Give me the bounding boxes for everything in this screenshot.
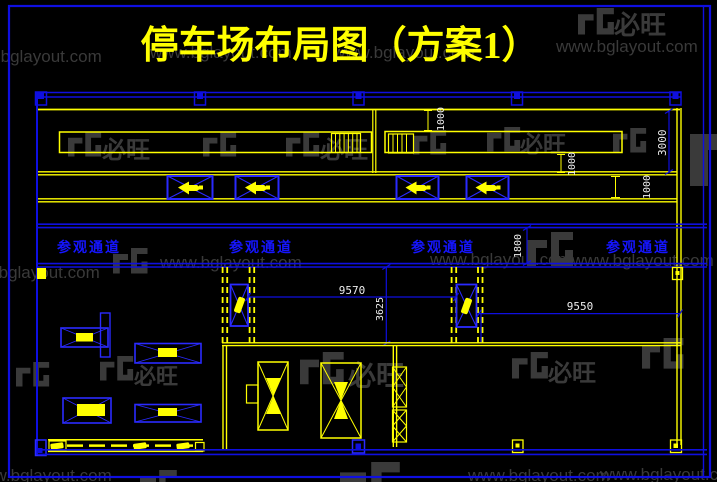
- stair-hatch: [389, 134, 414, 153]
- svg-text:1800: 1800: [513, 234, 524, 258]
- building-b: [385, 132, 622, 153]
- car-symbol: [460, 297, 472, 314]
- watermark-brand: 必旺: [348, 360, 404, 391]
- car-symbol: [50, 442, 64, 450]
- horizontal-stall: [135, 344, 201, 364]
- svg-text:1000: 1000: [642, 175, 653, 199]
- watermark-logo-icon: [487, 127, 520, 151]
- vertical-stall: [223, 267, 255, 343]
- dimension-1000-stair: 1000: [424, 107, 447, 131]
- horizontal-stall: [63, 398, 111, 423]
- watermark-url: www.bglayout.com: [467, 466, 610, 482]
- corridor-junction-left: [37, 268, 46, 279]
- direction-arrow-box: [236, 176, 279, 199]
- cad-canvas: www.bglayout.com www.bglayout.com www.bg…: [0, 0, 717, 482]
- watermark-logo-icon: [300, 352, 344, 384]
- corridor-label: 参观通道: [57, 239, 121, 255]
- road-markings: [38, 172, 677, 202]
- ramp-block: [247, 362, 289, 430]
- watermark-logo-icon: [512, 352, 548, 379]
- watermark-url: www.bglayout.com: [599, 465, 717, 482]
- watermark-url: www.bglayout.com: [0, 263, 100, 282]
- watermark-logo-icon: [16, 362, 49, 386]
- svg-text:1000: 1000: [567, 152, 578, 176]
- dimension-1000-road: 1000: [611, 175, 653, 199]
- dimension-9570: 9570: [246, 284, 459, 301]
- watermark-brand: 必旺: [614, 10, 666, 40]
- car-symbol: [133, 442, 147, 450]
- watermark-url: www.bglayout.com: [555, 37, 698, 56]
- watermark-logo-icon: [578, 8, 614, 35]
- car-symbol: [176, 442, 190, 450]
- junction-box: [671, 440, 682, 453]
- watermark-url: www.bglayout.com: [0, 466, 112, 482]
- dimension-3000: 3000: [656, 109, 673, 175]
- watermark-logo-icon: [100, 356, 133, 380]
- corridor-label: 参观通道: [229, 239, 293, 255]
- svg-text:9550: 9550: [567, 300, 594, 313]
- cad-drawing-page: www.bglayout.com www.bglayout.com www.bg…: [0, 0, 717, 482]
- corridor-label: 参观通道: [411, 239, 475, 255]
- dimension-9550: 9550: [477, 300, 683, 343]
- horizontal-stall: [135, 405, 201, 423]
- horizontal-stall: [61, 313, 110, 357]
- watermark-brand: 必旺: [134, 364, 178, 389]
- watermark-brand: 必旺: [102, 137, 150, 164]
- vertical-stall: [452, 267, 483, 343]
- car-symbol: [233, 296, 245, 313]
- svg-text:3000: 3000: [656, 130, 669, 157]
- watermark-brand: 必旺: [548, 360, 596, 387]
- junction-box: [353, 440, 365, 453]
- dimension-3625: 3625: [375, 265, 390, 347]
- watermark-logo-icon: [413, 130, 446, 154]
- drawing-title: 停车场布局图（方案1）: [140, 25, 539, 67]
- corridor-label: 参观通道: [606, 239, 670, 255]
- column-markers: [36, 92, 682, 105]
- direction-arrow-box: [168, 176, 213, 199]
- svg-text:9570: 9570: [339, 284, 366, 297]
- junction-box: [513, 440, 524, 453]
- svg-text:1000: 1000: [436, 107, 447, 131]
- direction-arrow-box: [397, 176, 439, 199]
- direction-arrow-box: [467, 176, 509, 199]
- svg-text:3625: 3625: [375, 297, 386, 321]
- watermark-url: www.bglayout.com: [159, 253, 302, 272]
- watermark-logo-icon: [340, 462, 400, 482]
- watermark-url: www.bglayout.com: [0, 47, 102, 66]
